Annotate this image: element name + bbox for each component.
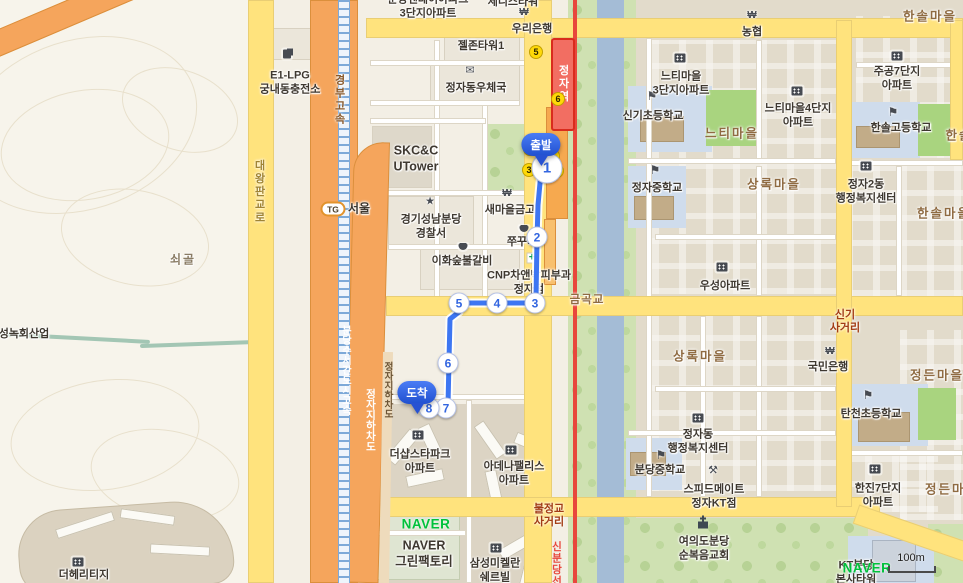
tollgate-badge: TG bbox=[321, 202, 346, 217]
post-office-icon: ✉ bbox=[465, 66, 474, 77]
poi-saemaul-geumgo: 새마을금고 bbox=[485, 204, 536, 218]
intersection-singi: 신기 사거리 bbox=[830, 309, 860, 335]
government-office-icon bbox=[861, 162, 872, 171]
school-flag-icon: ⚑ bbox=[650, 164, 661, 176]
destination-pin[interactable]: 도착 bbox=[397, 381, 436, 414]
church-park bbox=[636, 518, 868, 583]
church-icon bbox=[698, 522, 708, 529]
poi-woori-bank: 우리은행 bbox=[512, 23, 552, 37]
waypoint-4[interactable]: 4 bbox=[487, 293, 508, 314]
subway-exit-5[interactable]: 5 bbox=[529, 45, 543, 59]
street bbox=[896, 166, 902, 296]
bank-icon: ₩ bbox=[502, 189, 511, 199]
tollgate-name: 서울 bbox=[348, 202, 370, 217]
waypoint-2[interactable]: 2 bbox=[527, 227, 548, 248]
district-sangnok-2: 상록마을 bbox=[673, 346, 727, 365]
clinic-cross-icon: + bbox=[527, 253, 538, 264]
district-jeongdeun-2: 정든마을 bbox=[925, 479, 963, 498]
district-hansol-clip: 한솔 bbox=[945, 125, 963, 144]
start-pin-tail bbox=[534, 155, 548, 166]
apartment-icon bbox=[792, 87, 803, 96]
poi-yeouido-church: 여의도분당 순복음교회 bbox=[679, 535, 730, 563]
intersection-buljeong: 불정교 사거리 bbox=[534, 503, 564, 529]
road-buljeong bbox=[368, 497, 880, 517]
poi-naver-greenfactory: NAVER 그린팩토리 bbox=[395, 538, 453, 569]
start-pin[interactable]: 출발 bbox=[521, 133, 560, 166]
police-badge-icon: ★ bbox=[425, 197, 435, 208]
wrench-icon: ⚒ bbox=[708, 466, 718, 477]
waypoint-6[interactable]: 6 bbox=[438, 353, 459, 374]
road-label-daewang: 대왕판교로 bbox=[251, 160, 267, 225]
poi-skcc-utower: SKC&C UTower bbox=[394, 143, 439, 174]
road-top bbox=[366, 18, 963, 38]
school-flag-icon: ⚑ bbox=[863, 389, 874, 401]
poi-bundang-middleschool: 분당중학교 bbox=[635, 464, 686, 478]
city-block bbox=[272, 28, 312, 60]
poi-tancheon-elementary: 탄천초등학교 bbox=[841, 408, 902, 422]
street bbox=[370, 100, 520, 106]
apartment-icon bbox=[717, 263, 728, 272]
poi-adena-palace: 아데나팰리스 아파트 bbox=[484, 460, 545, 488]
street bbox=[388, 244, 526, 250]
road-label-underpass-2: 정자지하차도 bbox=[380, 362, 394, 419]
poi-geljon-tower: 젤존타워1 bbox=[458, 40, 505, 54]
poi-heritage: 더헤리티지 bbox=[59, 569, 110, 583]
apartment-icon bbox=[506, 446, 517, 455]
poi-neuti4-apt: 느티마을4단지 아파트 bbox=[765, 102, 832, 130]
naver-watermark: NAVER bbox=[402, 517, 451, 532]
waypoint-5[interactable]: 5 bbox=[449, 293, 470, 314]
street bbox=[646, 38, 652, 497]
poi-jeongjadong-community-center: 정자동 행정복지센터 bbox=[668, 428, 729, 456]
poi-nonghyup: 농협 bbox=[742, 26, 762, 40]
apartment-icon bbox=[675, 54, 686, 63]
poi-woosung-apt: 우성아파트 bbox=[700, 280, 751, 294]
road-label-gyeongbu: 경부고속 bbox=[331, 74, 347, 126]
poi-jeongja-middleschool: 정자중학교 bbox=[632, 182, 683, 196]
subway-exit-6[interactable]: 6 bbox=[551, 92, 565, 106]
destination-pin-tail bbox=[410, 403, 424, 414]
school-flag-icon: ⚑ bbox=[888, 106, 899, 118]
road-label-underpass: 정자지하차도 bbox=[364, 389, 379, 452]
naver-watermark: NAVER bbox=[843, 561, 892, 576]
poi-tower-top: 세니스타워 bbox=[488, 0, 539, 10]
poi-kookmin-bank: 국민은행 bbox=[808, 361, 848, 375]
waypoint-3[interactable]: 3 bbox=[525, 293, 546, 314]
school-field bbox=[918, 388, 956, 440]
school-flag-icon: ⚑ bbox=[656, 449, 667, 461]
apartment-icon bbox=[892, 52, 903, 61]
apartment-icon bbox=[413, 431, 424, 440]
street bbox=[628, 430, 836, 436]
district-jeongdeun-1: 정든마을 bbox=[910, 365, 963, 384]
street bbox=[756, 316, 762, 497]
road-label-expressway: 분당수서간도시고속 bbox=[338, 325, 353, 415]
poi-samsung-michelan: 삼성미켈란 쉐르빌 bbox=[470, 557, 521, 583]
destination-pin-label: 도착 bbox=[397, 381, 436, 404]
map-canvas[interactable]: 정자역 신분당선 대왕판교로 경부고속 분당수서간도시고속 정자지하차도 정자지… bbox=[0, 0, 963, 583]
school-building bbox=[634, 196, 674, 220]
street bbox=[466, 400, 472, 583]
bank-icon: ₩ bbox=[747, 11, 756, 21]
poi-hanjin7-apt: 한진7단지 아파트 bbox=[855, 482, 902, 510]
road-geumgok bbox=[386, 296, 963, 316]
scale-bar bbox=[888, 566, 936, 573]
poi-police-station: 경기성남분당 경찰서 bbox=[401, 213, 462, 241]
poi-neuti3-apt: 느티마을 3단지아파트 bbox=[653, 70, 710, 98]
apartment-icon bbox=[73, 558, 84, 567]
poi-post-office: 정자동우체국 bbox=[446, 82, 507, 96]
district-neuti: 느티마을 bbox=[705, 123, 759, 142]
start-pin-label: 출발 bbox=[521, 133, 560, 156]
apartment-icon bbox=[870, 465, 881, 474]
line-name: 신분당선 bbox=[550, 541, 565, 583]
street bbox=[370, 60, 526, 66]
scale-label: 100m bbox=[897, 552, 925, 564]
street bbox=[370, 118, 486, 124]
poi-thesharp-starpark: 더샵스타파크 아파트 bbox=[390, 448, 451, 476]
district-soegol: 쇠골 bbox=[170, 251, 196, 268]
poi-speedmate: 스피드메이트 정자KT점 bbox=[684, 483, 745, 511]
poi-ihwa-restaurant: 이화숲불갈비 bbox=[432, 255, 493, 269]
bridge-label-geumgok: 금곡교 bbox=[570, 291, 605, 307]
street bbox=[848, 450, 963, 456]
poi-jeongja2-community-center: 정자2동 행정복지센터 bbox=[836, 178, 897, 206]
district-hansol-2: 한솔마을 bbox=[917, 203, 963, 222]
poi-apartment-top: 분당센데이아파크 3단지아파트 bbox=[388, 0, 469, 21]
gas-station-icon bbox=[283, 50, 291, 59]
poi-jugong7-apt: 주공7단지 아파트 bbox=[874, 65, 921, 93]
poi-seongnok: 성녹회산업 bbox=[0, 328, 49, 342]
street bbox=[655, 386, 836, 392]
poi-e1-lpg: E1-LPG 궁내동충전소 bbox=[260, 69, 321, 97]
district-hansol-1: 한솔마을 bbox=[903, 6, 957, 25]
government-office-icon bbox=[693, 414, 704, 423]
street bbox=[700, 316, 706, 497]
poi-hansol-highschool: 한솔고등학교 bbox=[871, 122, 932, 136]
apartment-icon bbox=[491, 544, 502, 553]
road-vertical-east bbox=[836, 20, 852, 507]
bank-icon: ₩ bbox=[825, 347, 834, 357]
street bbox=[756, 40, 762, 160]
street bbox=[655, 234, 836, 240]
district-sangnok-1: 상록마을 bbox=[747, 174, 801, 193]
poi-singi-elementary: 신기초등학교 bbox=[623, 110, 684, 124]
